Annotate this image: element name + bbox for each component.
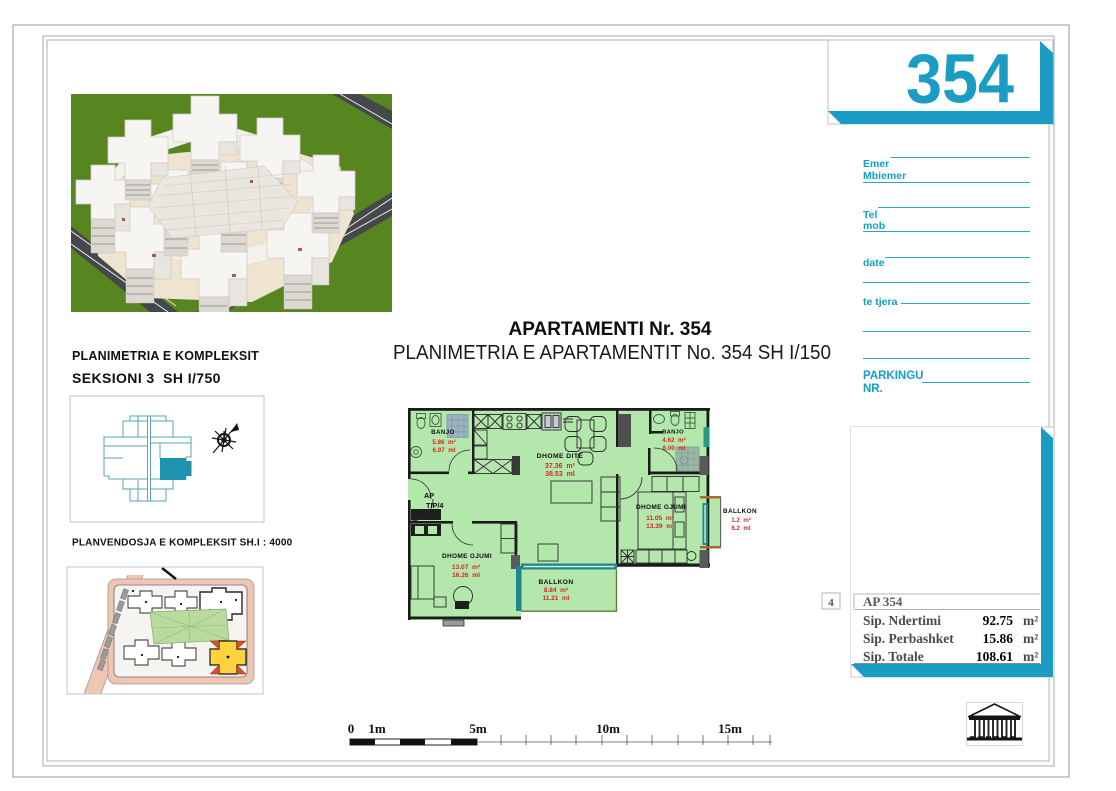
svg-text:PARKINGU: PARKINGU <box>863 370 923 382</box>
svg-text:13.39 ml: 13.39 ml <box>646 523 674 530</box>
svg-text:BALLKON: BALLKON <box>538 579 573 586</box>
svg-text:8.84 m²: 8.84 m² <box>544 587 569 594</box>
svg-text:Mbiemer: Mbiemer <box>863 170 906 182</box>
svg-text:APARTAMENTI Nr. 354: APARTAMENTI Nr. 354 <box>509 318 712 340</box>
svg-text:date: date <box>863 257 885 269</box>
svg-text:5.86 m²: 5.86 m² <box>432 439 455 446</box>
svg-text:AP: AP <box>424 491 434 500</box>
svg-text:92.75: 92.75 <box>983 613 1014 628</box>
svg-text:Emer: Emer <box>863 158 889 170</box>
svg-text:SEKSIONI 3 SH I/750: SEKSIONI 3 SH I/750 <box>72 370 221 386</box>
svg-text:0: 0 <box>348 721 355 736</box>
svg-text:m²: m² <box>1023 631 1038 646</box>
svg-text:PLANVENDOSJA E KOMPLEKSIT SH.I: PLANVENDOSJA E KOMPLEKSIT SH.I : 4000 <box>72 538 293 549</box>
svg-text:Sip. Ndertimi: Sip. Ndertimi <box>863 613 941 628</box>
svg-text:354: 354 <box>906 40 1014 118</box>
svg-text:PLANIMETRIA E APARTAMENTIT No.: PLANIMETRIA E APARTAMENTIT No. 354 SH I/… <box>393 342 831 364</box>
svg-text:AP 354: AP 354 <box>863 594 903 609</box>
svg-text:4.62 m²: 4.62 m² <box>662 437 685 444</box>
svg-text:m²: m² <box>1023 613 1038 628</box>
svg-text:15.86: 15.86 <box>983 631 1014 646</box>
svg-text:mob: mob <box>863 220 885 232</box>
svg-text:13.07 m²: 13.07 m² <box>452 564 481 571</box>
svg-text:BALLKON: BALLKON <box>723 508 757 515</box>
svg-text:1.2 m²: 1.2 m² <box>731 517 751 524</box>
svg-text:16.26 ml: 16.26 ml <box>452 572 480 579</box>
svg-text:4: 4 <box>828 597 834 609</box>
svg-text:38.53 ml: 38.53 ml <box>545 471 575 478</box>
svg-text:te tjera: te tjera <box>863 296 898 308</box>
svg-text:108.61: 108.61 <box>976 649 1013 664</box>
svg-text:37.36 m²: 37.36 m² <box>545 463 576 470</box>
svg-text:Sip. Perbashket: Sip. Perbashket <box>863 631 954 646</box>
svg-text:1m: 1m <box>368 721 386 736</box>
svg-text:5m: 5m <box>469 721 487 736</box>
svg-text:10m: 10m <box>596 721 620 736</box>
svg-text:PLANIMETRIA E KOMPLEKSIT: PLANIMETRIA E KOMPLEKSIT <box>72 349 259 363</box>
svg-text:DHOME DITE: DHOME DITE <box>537 453 584 460</box>
svg-text:15m: 15m <box>718 721 742 736</box>
svg-text:6.2 ml: 6.2 ml <box>731 525 751 532</box>
svg-text:DHOME GJUMI: DHOME GJUMI <box>636 504 686 511</box>
svg-text:11.05 m²: 11.05 m² <box>646 515 675 522</box>
svg-text:11.21 ml: 11.21 ml <box>542 595 569 602</box>
svg-text:m²: m² <box>1023 649 1038 664</box>
svg-text:BANJO: BANJO <box>431 429 455 436</box>
svg-text:BANJO: BANJO <box>662 430 684 436</box>
svg-text:NR.: NR. <box>863 383 883 395</box>
svg-text:TIP/4: TIP/4 <box>426 501 444 510</box>
svg-text:Sip. Totale: Sip. Totale <box>863 649 924 664</box>
svg-text:DHOME GJUMI: DHOME GJUMI <box>442 553 492 560</box>
svg-text:6.07 ml: 6.07 ml <box>432 447 455 454</box>
svg-text:8.00 ml: 8.00 ml <box>662 445 685 452</box>
